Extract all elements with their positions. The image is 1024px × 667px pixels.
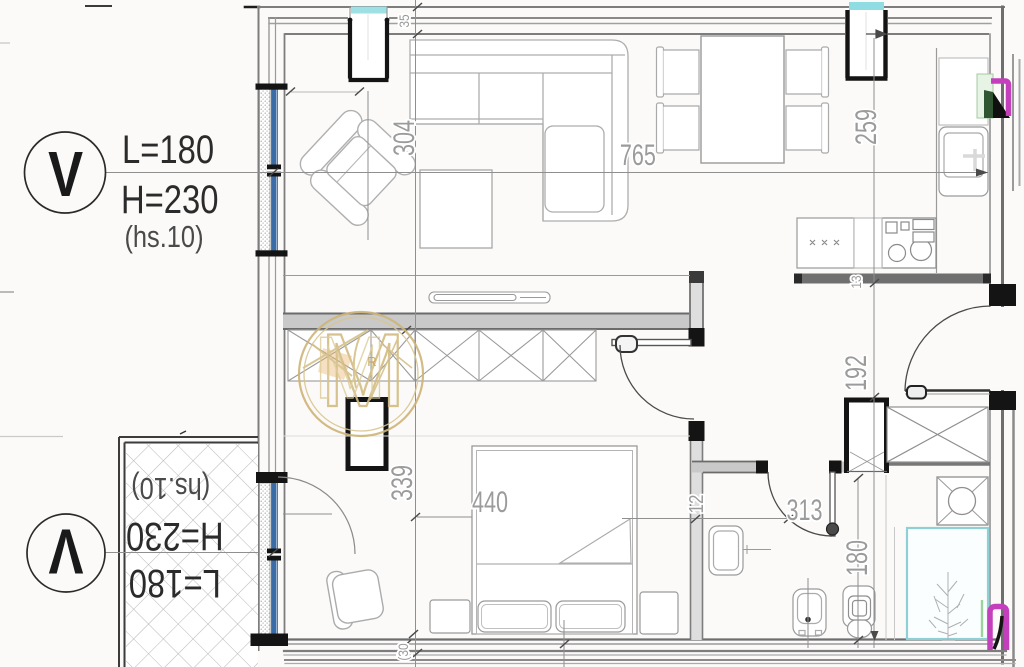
svg-text:V: V <box>48 515 83 586</box>
svg-text:304: 304 <box>386 120 420 156</box>
svg-text:12: 12 <box>685 495 708 514</box>
svg-text:259: 259 <box>848 109 882 145</box>
svg-text:L=180: L=180 <box>122 127 214 172</box>
svg-text:339: 339 <box>384 465 418 501</box>
svg-text:13: 13 <box>848 275 864 288</box>
svg-text:765: 765 <box>620 137 656 171</box>
svg-text:440: 440 <box>472 484 508 518</box>
svg-text:192: 192 <box>838 355 872 391</box>
svg-text:R: R <box>367 354 376 369</box>
svg-text:(30: (30 <box>395 643 411 660</box>
svg-text:V: V <box>48 139 83 210</box>
svg-text:313: 313 <box>787 492 823 526</box>
svg-text:(hs.10): (hs.10) <box>131 470 210 505</box>
svg-text:(hs.10): (hs.10) <box>124 220 203 255</box>
svg-text:180: 180 <box>839 540 873 576</box>
svg-text:35: 35 <box>396 14 412 27</box>
svg-text:L=180: L=180 <box>129 561 221 606</box>
svg-text:H=230: H=230 <box>121 177 219 222</box>
